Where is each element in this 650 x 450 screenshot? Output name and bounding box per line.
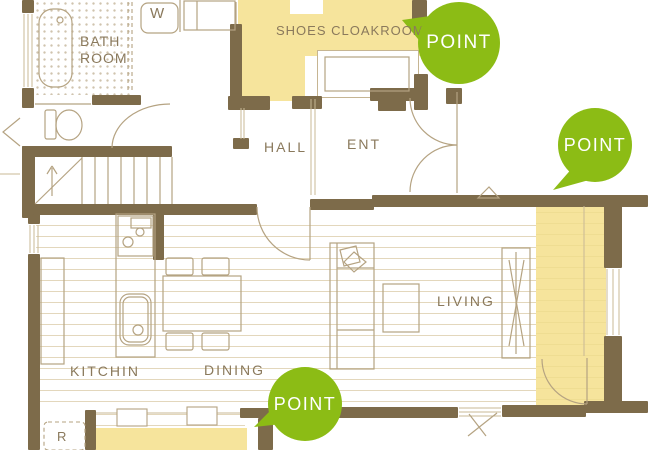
point-badge-1: POINT <box>418 2 500 84</box>
floor-plan: BATH ROOM W SHOES CLOAKROOM HALL ENT LIV… <box>0 0 650 450</box>
wall <box>292 96 322 109</box>
shoes-cloakroom-highlight-arm <box>238 0 305 101</box>
wall <box>33 204 257 215</box>
window-left-upper <box>24 14 32 87</box>
label-hall: HALL <box>264 139 307 155</box>
window-bottom-living <box>459 408 501 416</box>
site-arrow <box>3 118 20 146</box>
wall <box>258 418 273 450</box>
wall <box>446 88 462 104</box>
point-badge-label: POINT <box>564 135 627 156</box>
wall <box>310 199 374 210</box>
wall <box>92 95 141 105</box>
window-right-living <box>607 269 619 335</box>
shoes-cloakroom-notch <box>290 0 323 14</box>
toilet <box>35 104 91 140</box>
wall <box>604 336 622 408</box>
label-kitchen: KITCHIN <box>70 363 140 379</box>
window-x-mark <box>468 413 497 436</box>
toilet-door-arc <box>112 104 170 148</box>
wall <box>85 410 96 450</box>
wall <box>414 74 428 110</box>
label-shoes-cloakroom: SHOES CLOAKROOM <box>276 23 425 38</box>
wall <box>22 88 34 108</box>
point-badge-label: POINT <box>426 32 492 54</box>
label-entrance: ENT <box>347 136 381 152</box>
label-bath-line1: BATH <box>80 33 128 50</box>
point-badge-3: POINT <box>268 367 342 441</box>
wall <box>502 405 586 417</box>
vanity-sink <box>180 0 236 32</box>
hall-wall-thin <box>241 108 244 139</box>
veranda-highlight-right <box>536 202 606 410</box>
deck-highlight-bottom <box>95 428 247 450</box>
wall <box>378 99 406 111</box>
wall <box>228 96 270 110</box>
label-bath-line2: ROOM <box>80 50 128 67</box>
label-living: LIVING <box>437 293 495 309</box>
label-dining: DINING <box>204 362 265 378</box>
stairs <box>35 157 172 204</box>
point-badge-2: POINT <box>558 108 632 182</box>
label-washer: W <box>150 5 166 22</box>
hall-ent-divider <box>311 99 315 195</box>
label-bathroom: BATH ROOM <box>80 33 128 67</box>
point-badge-label: POINT <box>274 394 337 415</box>
wall <box>28 254 40 450</box>
wall <box>22 146 172 157</box>
wood-floor-deck-edge <box>95 404 245 428</box>
wall <box>604 202 622 268</box>
label-fridge: R <box>57 429 67 444</box>
wall <box>22 0 34 13</box>
wall <box>153 212 164 260</box>
wall <box>233 138 249 149</box>
wall <box>230 24 242 102</box>
wall <box>584 401 648 413</box>
